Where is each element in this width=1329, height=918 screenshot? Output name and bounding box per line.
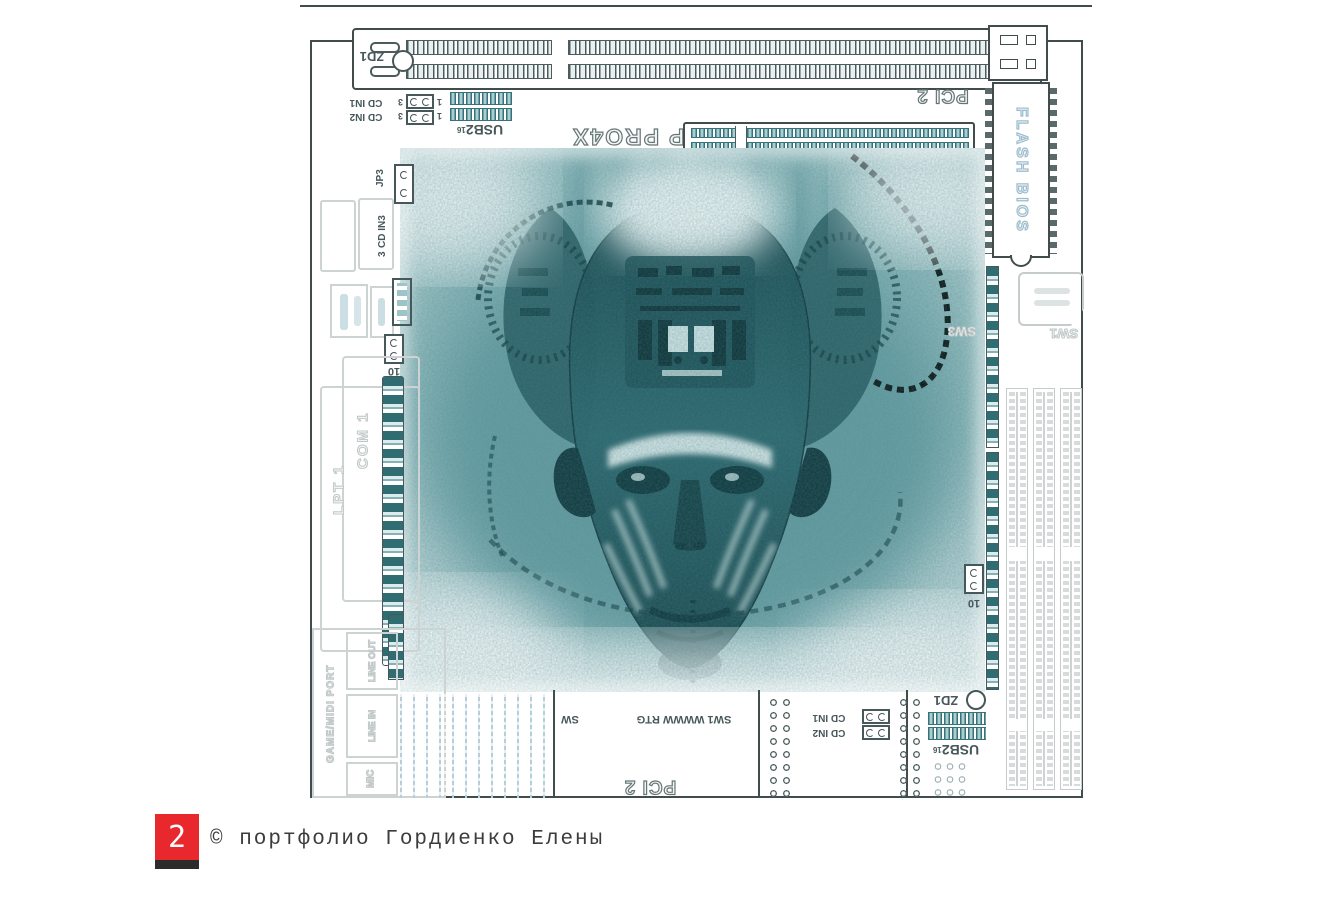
top-rule xyxy=(300,5,1092,7)
jumper-pin-icon xyxy=(866,729,874,737)
zd1-circle-bottom xyxy=(966,690,986,710)
dimm-slot-2 xyxy=(1033,388,1055,790)
pad-column-2 xyxy=(894,694,921,800)
ghost-box-1 xyxy=(320,200,356,272)
flash-bios-pins-right xyxy=(1050,88,1057,254)
dimm-slot-3 xyxy=(1060,388,1082,790)
ghost-box-3 xyxy=(330,284,368,338)
topright-connector xyxy=(988,25,1048,81)
cd-in1-label-bottom: CD IN1 xyxy=(800,711,858,724)
flash-bios-label: FLASH BIOS xyxy=(1003,90,1039,250)
lpt1-label: LPT 1 xyxy=(328,420,350,560)
conn-pad xyxy=(1026,59,1036,69)
sw3-label: SW3 xyxy=(942,324,982,340)
slot-divider xyxy=(553,690,555,798)
ghost-marking xyxy=(354,296,361,326)
sw-partial-label: SW xyxy=(556,712,584,726)
pci-slot-top xyxy=(352,28,1042,90)
right-teal-connector-2 xyxy=(986,452,999,690)
slot-divider xyxy=(758,690,760,798)
page-number: 2 xyxy=(155,814,199,860)
dimm-key xyxy=(1062,547,1081,561)
mic-label: MIC xyxy=(356,763,386,795)
zd1-label-bottom: ZD1 xyxy=(926,692,966,710)
line-in-label: LINE IN xyxy=(352,698,392,754)
cd-in2-jumper xyxy=(406,110,434,125)
usb2-header-bottom-row2 xyxy=(928,727,986,740)
ghost-chip xyxy=(1018,272,1084,326)
ghost-marking xyxy=(340,294,348,330)
usb2-header-top-row2 xyxy=(450,108,512,121)
ghost-marking xyxy=(1034,288,1070,294)
pci-pins-row1-b xyxy=(568,40,1030,55)
usb2-pincount: 16 xyxy=(933,746,942,755)
usb2-header-bottom-row1 xyxy=(928,712,986,725)
copyright-text: © портфолио Гордиенко Елены xyxy=(210,826,690,852)
ghost-marking xyxy=(1034,300,1070,306)
pad-column-1 xyxy=(764,694,791,800)
flash-bios-chip: FLASH BIOS xyxy=(992,82,1050,258)
dimm-key xyxy=(1008,547,1027,561)
cd-in1-label-top: CD IN1 xyxy=(336,96,396,109)
usb2-label-bottom: USB216 xyxy=(920,741,992,759)
trace-bundle xyxy=(400,694,548,798)
cd-in1-pin3: 3 xyxy=(396,96,405,109)
usb2-pincount: 16 xyxy=(457,126,466,135)
ghost-box-2 xyxy=(358,198,394,270)
right-teal-connector-1 xyxy=(986,266,999,448)
pci-pins-row1-a xyxy=(406,40,552,55)
cd-in2-pin1: 1 xyxy=(435,110,444,123)
agp-pins-row1 xyxy=(691,128,969,138)
portfolio-page: ZD1 PCI 2 CD IN1 3 1 CD IN2 3 1 USB216 A… xyxy=(0,0,1329,918)
jp3-jumper xyxy=(394,164,414,204)
sw1-rtg-label: SW1 WWWW RTG xyxy=(622,711,746,727)
jumper-pin-icon xyxy=(390,339,398,347)
usb2-text: USB2 xyxy=(466,122,503,138)
aux-connector xyxy=(392,278,412,326)
jumper-pin-icon xyxy=(410,114,418,122)
com1-label: COM 1 xyxy=(352,382,374,498)
cd-in2-pin3: 3 xyxy=(396,110,405,123)
cd-in2-jumper-bottom xyxy=(862,725,890,740)
jp3-label: JP3 xyxy=(372,160,389,196)
pad-grid-bottom xyxy=(932,760,970,798)
usb2-header-top-row1 xyxy=(450,92,512,105)
ghost-marking xyxy=(378,298,385,326)
jumper-pin-icon xyxy=(422,98,430,106)
jumper-pin-icon xyxy=(878,729,886,737)
dimm-slot-1 xyxy=(1006,388,1028,790)
usb2-text: USB2 xyxy=(942,742,979,758)
cd-in1-jumper-bottom xyxy=(862,709,890,724)
jumper-pin-icon xyxy=(400,171,408,179)
conn-pad xyxy=(1000,59,1018,69)
jumper-pin-icon xyxy=(410,98,418,106)
sw1-label: SW1 xyxy=(1044,326,1084,342)
cd-in2-label-top: CD IN2 xyxy=(336,110,396,123)
game-midi-label: GAME/MIDI PORT xyxy=(322,634,340,794)
dimm-key xyxy=(1035,719,1054,731)
line-out-label: LINE OUT xyxy=(352,634,392,688)
dimm-key xyxy=(1008,719,1027,731)
page-number-badge: 2 xyxy=(155,814,199,860)
usb2-label-top: USB216 xyxy=(444,121,516,139)
artwork-cyborg-face xyxy=(400,148,985,692)
jumper-pin-icon xyxy=(878,713,886,721)
jumper-pin-icon xyxy=(400,189,408,197)
jumper-pin-icon xyxy=(970,569,978,577)
pci-pins-row2-b xyxy=(568,64,1030,79)
conn-pad xyxy=(1000,35,1018,45)
jumper-pin-icon xyxy=(422,114,430,122)
right-jumper xyxy=(964,564,984,594)
pci-pins-row2-a xyxy=(406,64,552,79)
conn-pad xyxy=(1026,35,1036,45)
pci2-label-bottom: PCI 2 xyxy=(610,774,690,798)
page-number-underline xyxy=(155,860,199,869)
zd1-label-top: ZD1 xyxy=(352,48,392,66)
zd1-circle-top xyxy=(392,50,414,72)
cd-in2-label-bottom: CD IN2 xyxy=(800,726,858,739)
jumper-pin-icon xyxy=(970,582,978,590)
dimm-key xyxy=(1035,547,1054,561)
ghost-box-4 xyxy=(370,286,394,338)
flash-bios-pins-left xyxy=(985,88,992,254)
pci2-label-top: PCI 2 xyxy=(905,84,980,106)
jumper-pin-icon xyxy=(866,713,874,721)
cd-in1-jumper xyxy=(406,94,434,109)
cd-in1-pin1: 1 xyxy=(435,96,444,109)
dimm-slot-group xyxy=(1006,388,1084,790)
dimm-key xyxy=(1062,719,1081,731)
right-jumper-10-label: 10 xyxy=(962,596,986,610)
